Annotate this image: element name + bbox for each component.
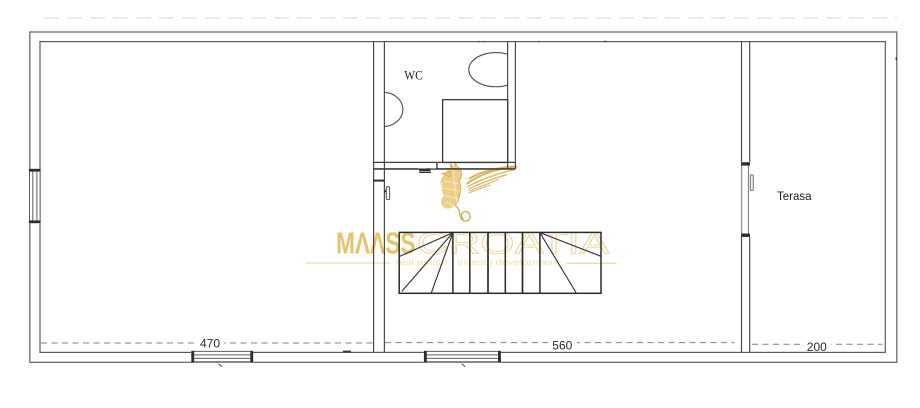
svg-text:200: 200 — [807, 340, 827, 354]
svg-text:WC: WC — [404, 68, 423, 82]
svg-text:MΛΛSS: MΛΛSS — [336, 226, 416, 261]
svg-text:Terasa: Terasa — [777, 191, 812, 203]
svg-text:560: 560 — [552, 338, 572, 352]
svg-text:470: 470 — [200, 336, 220, 350]
svg-text:CROATIA: CROATIA — [417, 226, 610, 261]
svg-text:real estate - invest | develop: real estate - invest | development — [396, 257, 561, 267]
